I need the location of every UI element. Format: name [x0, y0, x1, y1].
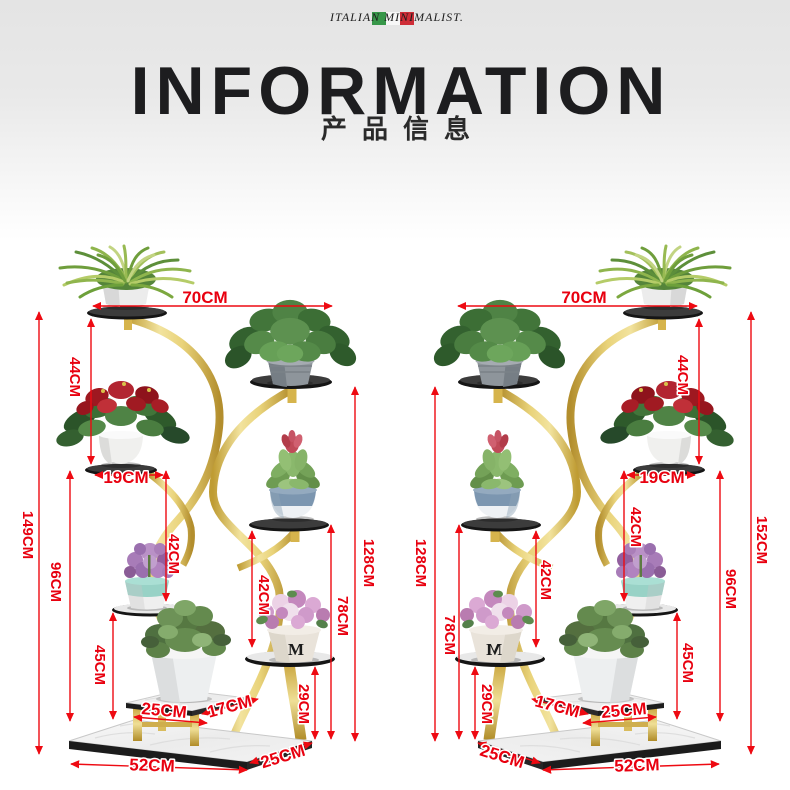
svg-text:44CM: 44CM	[674, 355, 691, 395]
svg-text:45CM: 45CM	[91, 645, 108, 685]
svg-text:42CM: 42CM	[627, 507, 644, 547]
svg-text:149CM: 149CM	[19, 511, 36, 559]
svg-text:29CM: 29CM	[478, 684, 495, 724]
svg-text:45CM: 45CM	[679, 643, 696, 683]
svg-text:42CM: 42CM	[537, 560, 554, 600]
svg-text:70CM: 70CM	[561, 288, 606, 307]
svg-text:70CM: 70CM	[182, 288, 227, 307]
svg-text:44CM: 44CM	[66, 357, 83, 397]
svg-text:19CM: 19CM	[639, 468, 684, 487]
svg-text:29CM: 29CM	[295, 684, 312, 724]
svg-text:128CM: 128CM	[412, 539, 429, 587]
svg-text:78CM: 78CM	[441, 615, 458, 655]
svg-text:96CM: 96CM	[47, 562, 64, 602]
svg-text:19CM: 19CM	[103, 468, 148, 487]
svg-text:52CM: 52CM	[614, 755, 660, 776]
svg-text:78CM: 78CM	[334, 596, 351, 636]
svg-text:25CM: 25CM	[141, 699, 188, 722]
svg-text:25CM: 25CM	[600, 699, 647, 722]
svg-text:96CM: 96CM	[722, 569, 739, 609]
svg-text:152CM: 152CM	[753, 516, 770, 564]
svg-text:52CM: 52CM	[129, 755, 175, 776]
svg-text:128CM: 128CM	[360, 539, 377, 587]
svg-text:42CM: 42CM	[165, 534, 182, 574]
svg-text:42CM: 42CM	[255, 575, 272, 615]
